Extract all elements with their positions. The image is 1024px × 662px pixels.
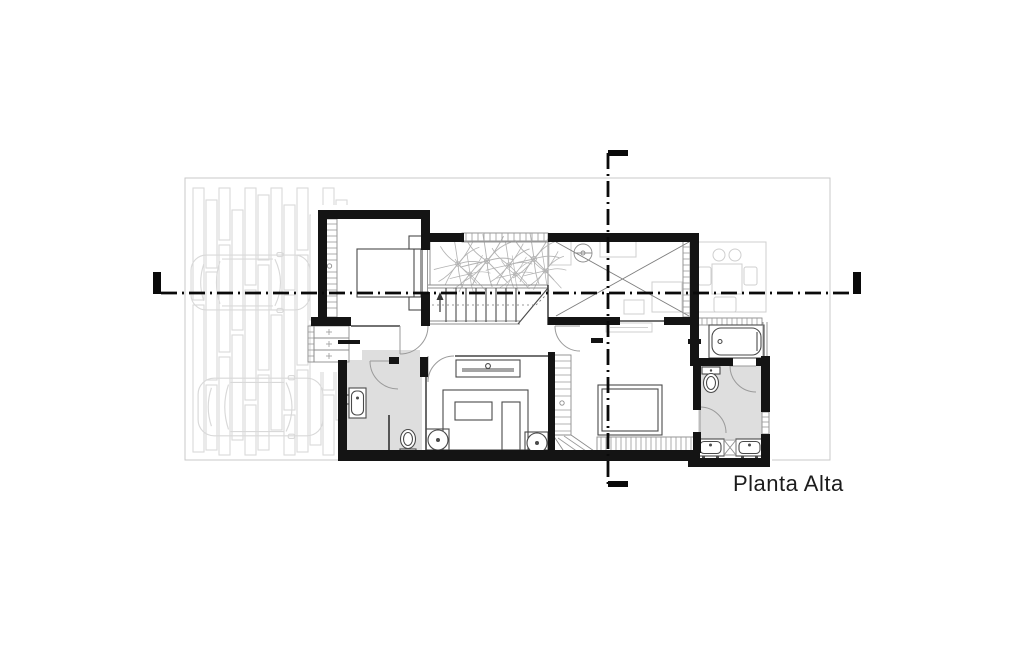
floor-plan-canvas: Planta Alta	[0, 0, 1024, 662]
plan-title: Planta Alta	[733, 471, 913, 497]
car-top-view	[191, 253, 310, 313]
section-cut-marker-bottom	[608, 481, 628, 487]
bed-icon	[443, 390, 528, 450]
bathtub-icon	[709, 325, 764, 358]
section-cut-marker-top	[608, 150, 628, 156]
hallway-console	[456, 360, 520, 377]
door-jamb-mark	[338, 340, 360, 344]
toilet-icon	[702, 367, 720, 393]
door-jamb-mark	[591, 338, 603, 343]
floor-plan-drawing	[0, 0, 1024, 662]
section-cut-marker-left	[153, 272, 161, 294]
section-cut-marker-right	[853, 272, 861, 294]
